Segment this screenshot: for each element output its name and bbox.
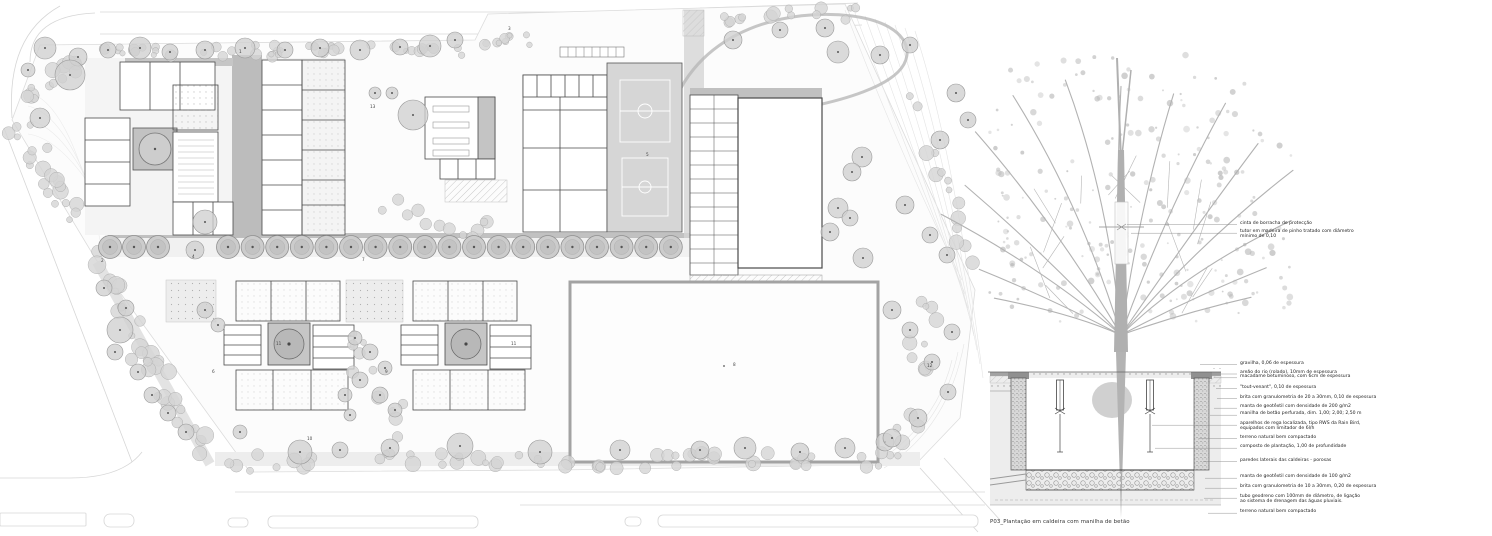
annotation-label: aparelhos de rega localizada, tipo RWS d… [1240,422,1360,432]
plan-number: 11 [511,341,517,346]
planting-section [988,352,1221,518]
annotation-label: paredes laterais das caldeiras - porosas [1240,459,1331,464]
annotation-label: terreno natural bem compactado [1240,510,1316,515]
concrete-ring-wall-right [1194,378,1209,470]
plan-number: 5 [646,152,649,157]
annotation-label: brita com granulometria de 10 a 30mm, 0,… [1240,485,1376,490]
classroom-cluster-1 [224,281,354,410]
annotation-label: manilha de betão perfurada, dim. 1,00; 2… [1240,412,1362,417]
playing-field [570,282,878,462]
main-school-building [85,55,345,237]
gymnasium-building [690,88,822,287]
annotation-label: terreno natural bem compactado [1240,436,1316,441]
site-plan-and-planting-detail: 1234567891011111213 [0,0,1492,536]
site-plan: 1234567891011111213 [0,2,1000,532]
plan-number: 4 [192,254,195,259]
sports-block [523,47,682,232]
annotation-label: tutor em madeira de pinho tratado com di… [1240,230,1354,240]
architectural-drawing-sheet: { "drawing": { "caption": "P03_Plantação… [0,0,1492,536]
annotation-label: composto de plantação, 1,00 de profundid… [1240,445,1346,450]
plan-number: 6 [212,369,215,374]
root-ball [1092,382,1132,418]
annotation-label: cinta de borracha de protecção [1240,222,1312,227]
plan-number: 10 [307,436,313,441]
concrete-ring-wall-left [1011,378,1026,470]
plan-number: 3 [508,26,511,31]
detail-caption: P03_Plantação em caldeira com manilha de… [990,519,1130,525]
annotation-label: gravilha, 0,06 de espessura [1240,362,1304,367]
plan-number: 7 [362,257,365,262]
annotation-label: brita com granulometria de 20 a 30mm, 0,… [1240,396,1376,401]
plan-number: 11 [276,341,282,346]
annotation-label: manta de geotêxtil com densidade de 100 … [1240,475,1351,480]
plan-number: 12 [927,363,933,368]
plan-number: 1 [239,49,242,54]
plan-number: 9 [385,369,388,374]
gravel-bed [1026,470,1194,490]
annotation-label: macadame betuminoso, com 6cm de espessur… [1240,375,1350,380]
tree-stake [1115,202,1128,264]
annotation-label: manta de geotêxtil com densidade de 200 … [1240,405,1351,410]
plan-number: 13 [370,104,376,109]
plan-number: 8 [733,362,736,367]
annotation-label: tubo geodreno com 100mm de diâmetro, de … [1240,495,1360,505]
plan-number: 2 [101,258,104,263]
annotation-label: "tout-venant", 0,10 de espessura [1240,386,1316,391]
